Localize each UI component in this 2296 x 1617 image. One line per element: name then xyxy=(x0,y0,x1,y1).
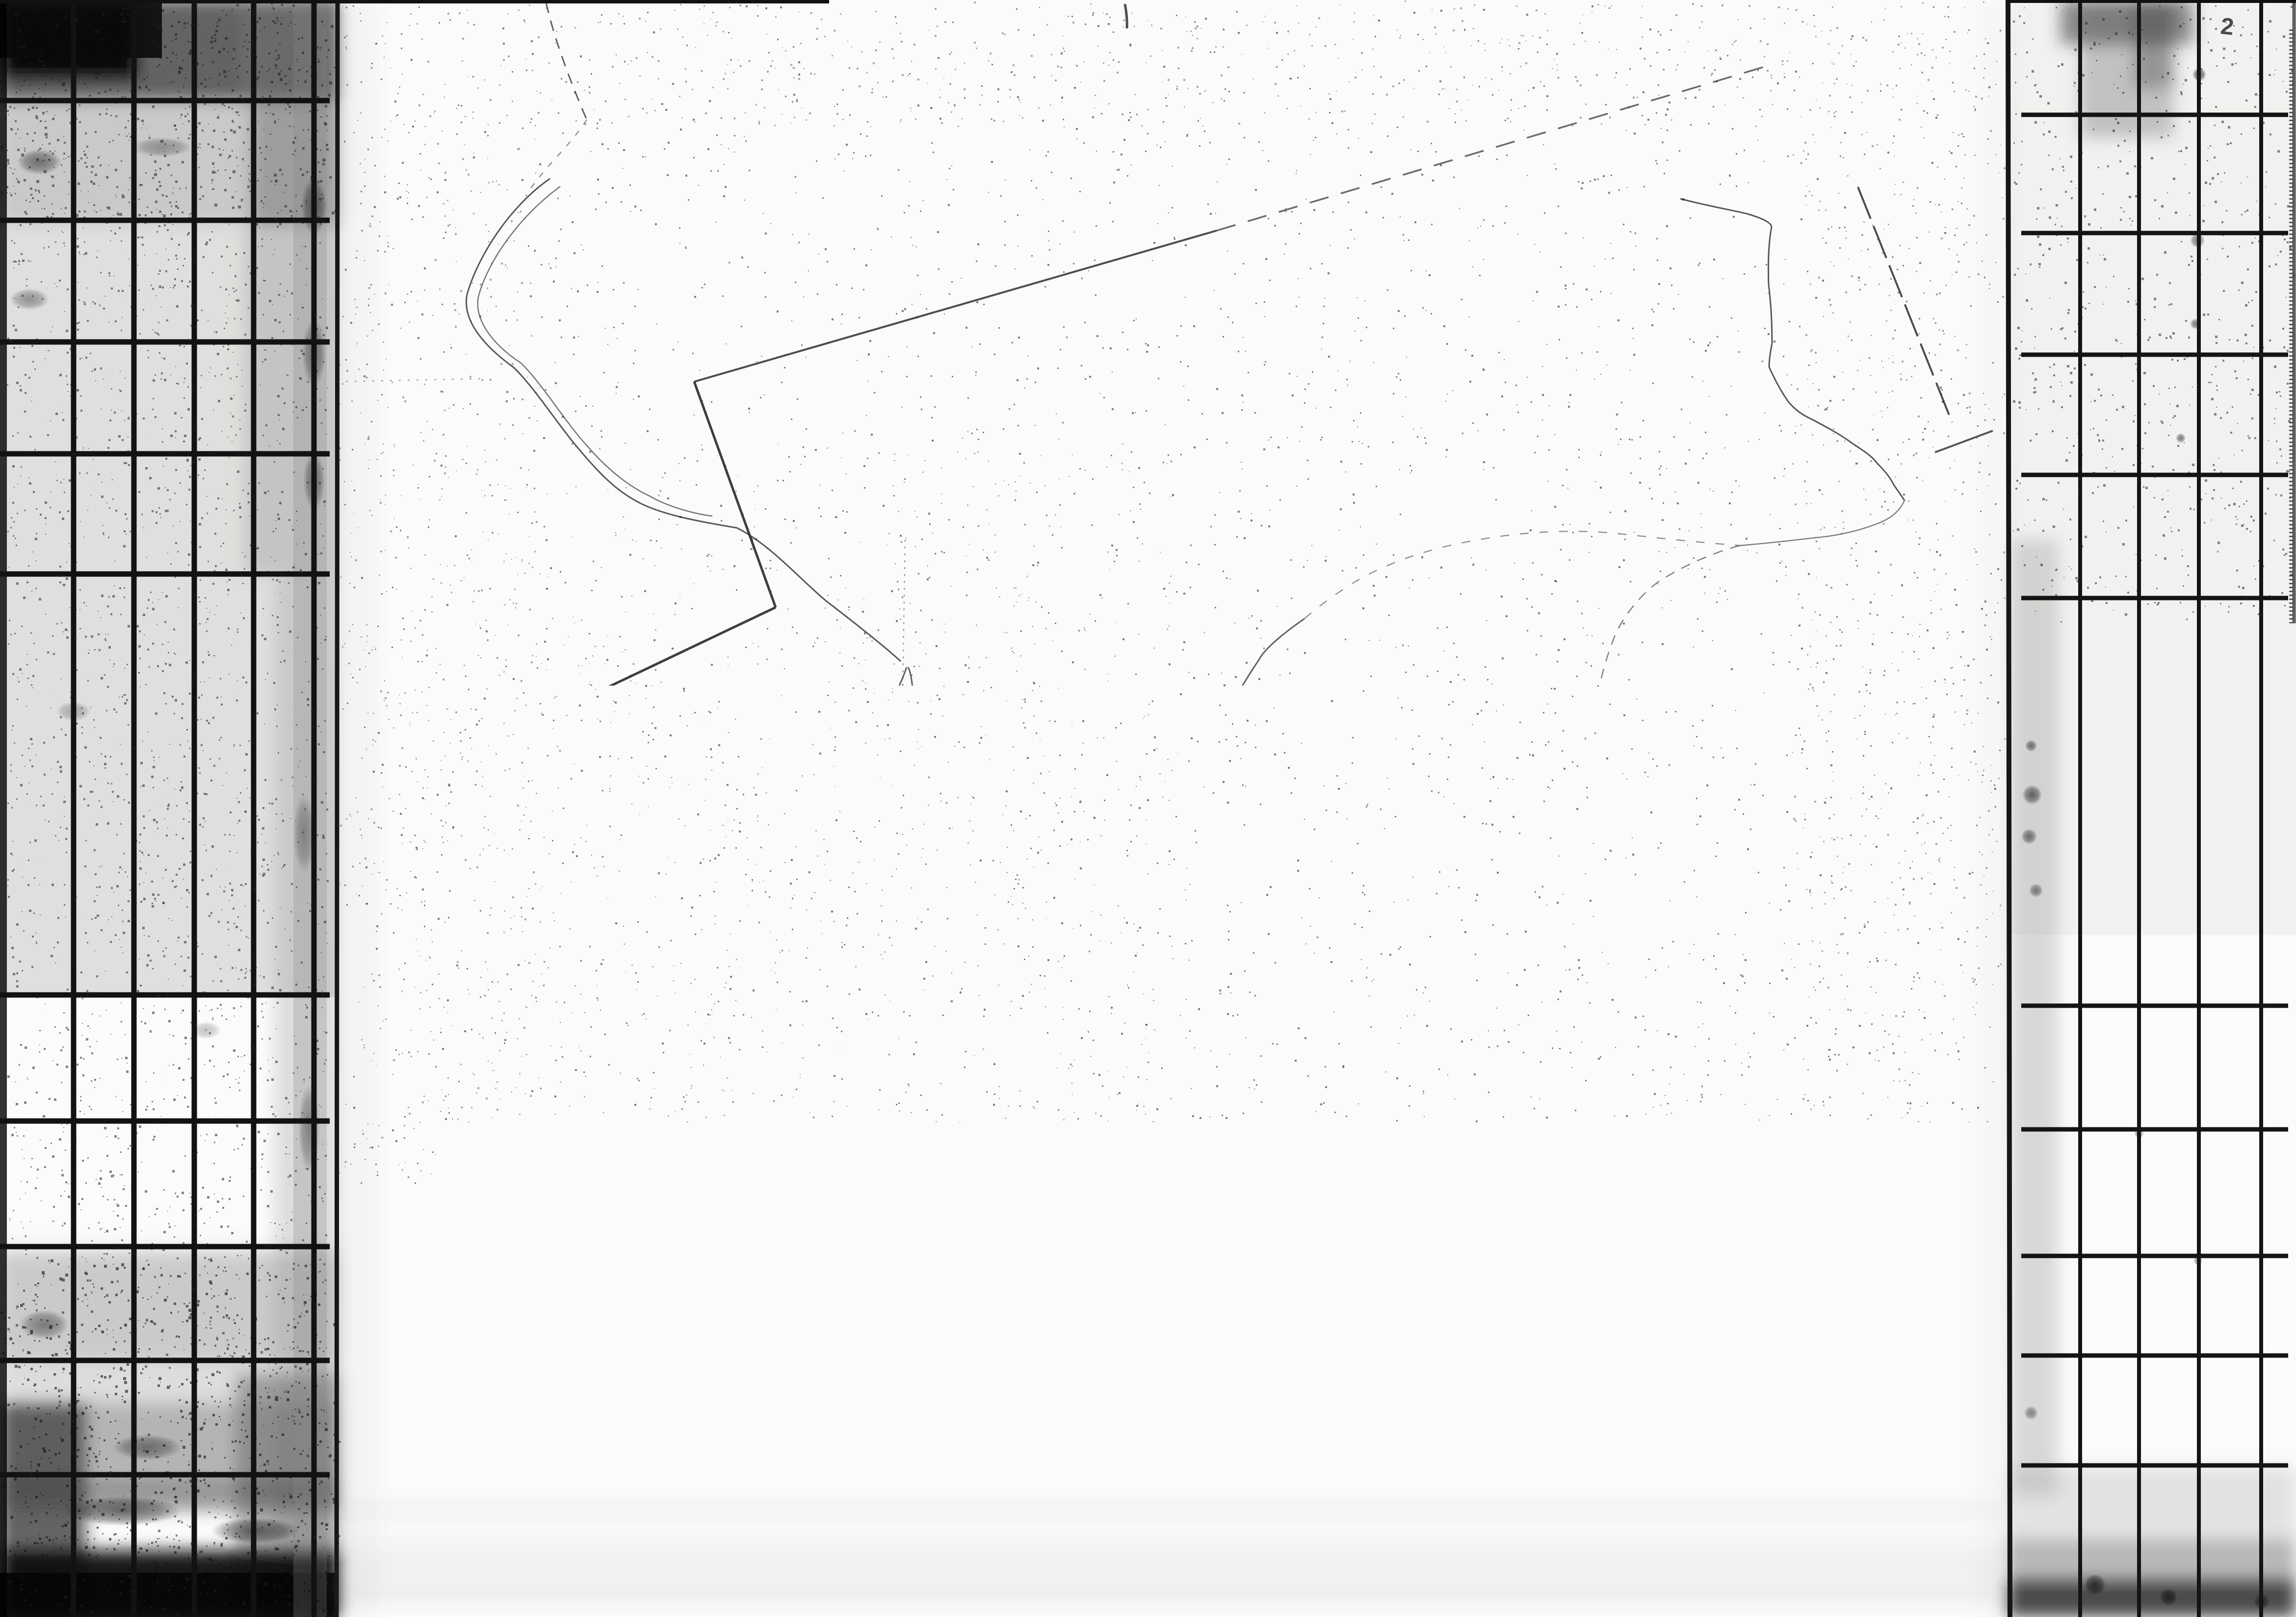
svg-text:SIZE: SIZE xyxy=(792,1475,816,1485)
svg-text:FAN DATA: FAN DATA xyxy=(790,1423,849,1434)
svg-text:0: 0 xyxy=(1241,1186,1247,1197)
svg-text:LEGEND: LEGEND xyxy=(592,1424,636,1434)
svg-text:CHURCHVILLE: CHURCHVILLE xyxy=(1806,1252,1913,1267)
svg-text:CLARKSBURG, W.V.: CLARKSBURG, W.V. xyxy=(1679,1450,1789,1462)
svg-text:PERMANENT FAN LOCATION: PERMANENT FAN LOCATION xyxy=(1683,1183,1853,1196)
svg-text:-44.: -44. xyxy=(1893,1201,1911,1213)
svg-text:HA: HA xyxy=(1597,1322,1624,1344)
svg-text:TYPE: TYPE xyxy=(792,1459,820,1469)
svg-text:MINE NO. 1A: MINE NO. 1A xyxy=(1720,1350,1806,1362)
svg-text:ESCAPE-WAY: ESCAPE-WAY xyxy=(593,1603,660,1613)
svg-text:METHANE: METHANE xyxy=(792,1603,844,1614)
svg-text:COVERS THE PERIOD ENDING: COVERS THE PERIOD ENDING xyxy=(1586,1521,1697,1529)
svg-text:LATITUDE: LATITUDE xyxy=(1779,1271,1829,1280)
svg-text:35'45": 35'45" xyxy=(1863,1271,1889,1281)
svg-text:CHECK CURTAIN: CHECK CURTAIN xyxy=(593,1491,677,1501)
svg-text:200: 200 xyxy=(1318,1182,1334,1193)
svg-text:19-1: 19-1 xyxy=(1800,1521,1814,1529)
svg-text:SEPTEMBER 1960: SEPTEMBER 1960 xyxy=(1739,1393,1831,1404)
svg-text:NAME: NAME xyxy=(792,1443,823,1454)
svg-text:SPEED: SPEED xyxy=(792,1491,828,1501)
svg-text:2: 2 xyxy=(2219,13,2235,41)
svg-text:100: 100 xyxy=(1195,1188,1211,1199)
svg-text:PERMANENT STOPPING: PERMANENT STOPPING xyxy=(593,1475,713,1485)
svg-text:300: 300 xyxy=(1357,1180,1373,1191)
svg-text:I, THE UNDERSIGNED, HEREBY CER: I, THE UNDERSIGNED, HEREBY CERTIFY THAT … xyxy=(1586,1493,1839,1501)
svg-text:CAMDEN FREEMANS CREEK DISTRI: CAMDEN FREEMANS CREEK DISTRICT LEWIS COU… xyxy=(1589,1371,1887,1382)
svg-text:S. ON: S. ON xyxy=(1748,1253,1782,1267)
svg-text:ELEVATION OF BENCH MARK: ELEVATION OF BENCH MARK xyxy=(1717,1228,1841,1238)
svg-text:SEAL: SEAL xyxy=(593,1443,619,1453)
svg-text:TEMPORARY STOPPING: TEMPORARY STOPPING xyxy=(593,1459,714,1469)
svg-text:100: 100 xyxy=(1279,1184,1295,1195)
svg-text:Scale, feet: Scale, feet xyxy=(1257,1209,1297,1219)
svg-text:CONSULTING ENGINEER: CONSULTING ENGINEER xyxy=(1679,1436,1818,1449)
svg-text:VOLTAGE: VOLTAGE xyxy=(792,1523,841,1533)
